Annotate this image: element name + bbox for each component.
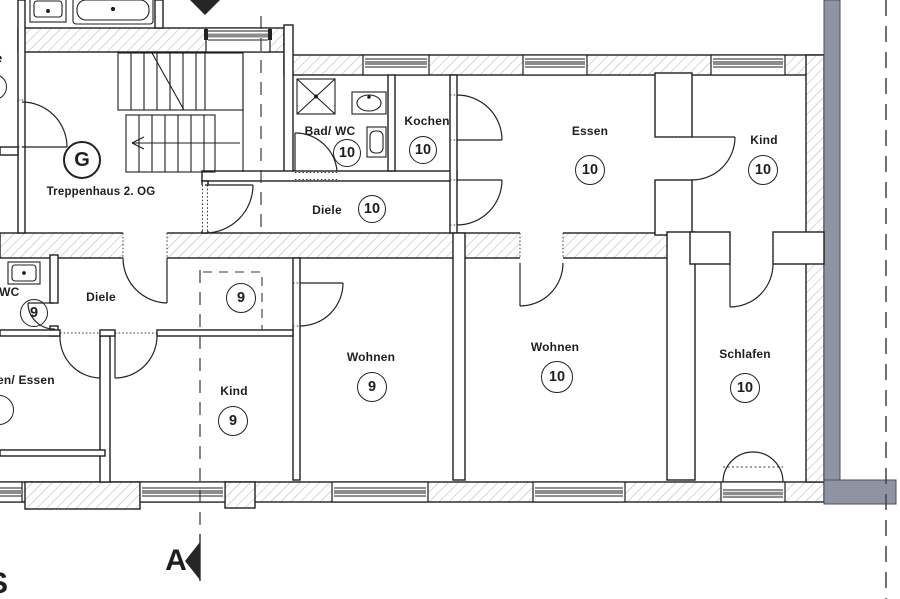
window-kind-10 [711,55,785,75]
door-essen-kind10 [692,137,735,180]
door-kochen-essen [457,95,502,140]
edge-text-top-left: e [0,51,2,66]
door-wohnen9 [300,283,343,326]
door-schlafen [730,264,773,307]
window-bottom-left-edge [0,482,22,502]
wc-bad [367,127,386,157]
stairwell-label: Treppenhaus 2. OG [47,186,156,198]
sink-top [30,0,66,22]
room-label-kind-10: Kind [750,133,777,147]
window-stairwell [204,28,272,52]
staircase [118,53,243,172]
window-kochen [363,55,429,75]
room-label-kochen: Kochen [404,114,449,128]
door-flat9-entry [123,258,167,303]
section-triangle-bottom [185,542,200,580]
door-bad-wc [295,133,337,171]
french-door-schlafen [721,452,785,502]
door-neighbor-stairwell [22,102,67,147]
number-circle-essen: 10 [575,155,605,185]
floor-plan: Treppenhaus 2. OG Bad/ WC Kochen Diele E… [0,0,900,599]
number-circle-diele-10: 10 [358,195,386,223]
room-label-essen: Essen [572,124,608,138]
number-circle-kind-9: 9 [218,406,248,436]
window-wohnen-10 [533,482,625,502]
floor-plan-drawing [0,0,900,599]
room-label-diele-9: Diele [86,290,116,304]
sink-bad [352,92,386,114]
number-circle-kochen: 10 [409,136,437,164]
room-label-wohnen-10: Wohnen [531,340,579,354]
section-triangle-top [190,0,220,15]
door-flat10-entry [205,185,253,233]
room-label-wohnen-essen: en/ Essen [0,373,55,387]
room-label-kind-9: Kind [220,384,247,398]
section-label-a: A [165,544,187,578]
door-wohnen-essen9 [60,336,100,378]
number-circle-diele-9: 9 [226,283,256,313]
number-circle-wohnen-9: 9 [357,372,387,402]
room-label-diele-10: Diele [312,203,342,217]
number-circle-wohnen-10: 10 [541,361,573,393]
stairwell-letter-circle: G [63,141,101,179]
window-kind-9 [140,482,225,502]
number-circle-wc-9: 9 [20,299,48,327]
number-circle-kind-10: 10 [748,155,778,185]
room-label-wohnen-9: Wohnen [347,350,395,364]
sink-wc9 [8,262,40,284]
number-circle-schlafen: 10 [730,373,760,403]
bathtub-top [73,0,153,24]
number-circle-bad-wc: 10 [333,139,361,167]
edge-text-bottom-left: S [0,567,8,599]
room-label-bad-wc: Bad/ WC [305,124,356,138]
shower [297,79,335,114]
stair-walk-line [132,137,240,149]
door-kind9 [115,336,157,378]
room-label-wc-9: / WC [0,285,19,299]
room-label-schlafen: Schlafen [719,347,771,361]
window-essen [523,55,587,75]
neighbor-building-wall [824,0,896,504]
door-wohnen10 [520,263,563,306]
door-diele-essen [457,180,502,225]
window-wohnen-9 [332,482,428,502]
